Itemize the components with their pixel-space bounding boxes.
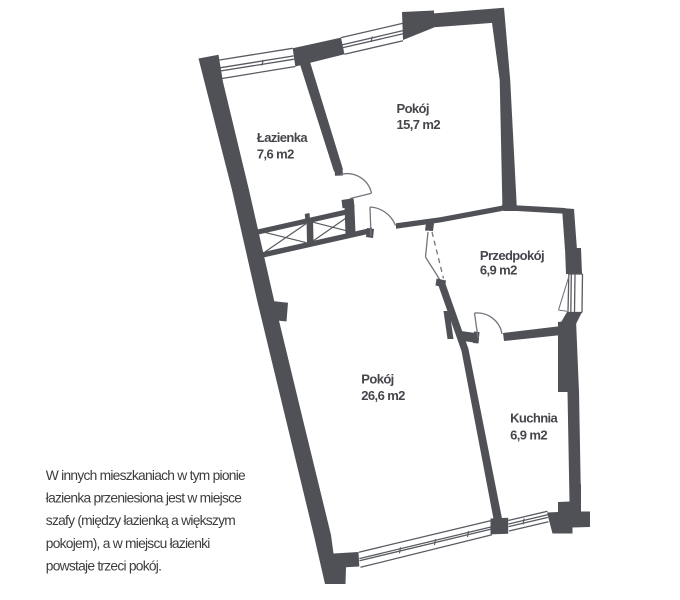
svg-text:Kuchnia: Kuchnia	[510, 410, 558, 425]
svg-text:powstaje trzeci pokój.: powstaje trzeci pokój.	[46, 558, 161, 573]
svg-text:Łazienka: Łazienka	[257, 130, 308, 145]
svg-text:Przedpokój: Przedpokój	[480, 248, 544, 263]
svg-text:pokojem), a w miejscu łazienki: pokojem), a w miejscu łazienki	[46, 536, 211, 551]
svg-text:6,9 m2: 6,9 m2	[480, 263, 517, 278]
svg-text:W innych mieszkaniach w tym pi: W innych mieszkaniach w tym pionie	[46, 468, 246, 483]
svg-text:26,6 m2: 26,6 m2	[361, 388, 405, 403]
svg-text:łazienka przeniesiona jest w m: łazienka przeniesiona jest w miejsce	[46, 491, 242, 506]
svg-text:15,7 m2: 15,7 m2	[397, 117, 441, 132]
svg-text:Pokój: Pokój	[361, 372, 393, 387]
svg-text:szafy (między łazienką a więks: szafy (między łazienką a większym	[46, 513, 235, 528]
svg-text:7,6 m2: 7,6 m2	[257, 147, 294, 162]
svg-text:6,9 m2: 6,9 m2	[510, 428, 547, 443]
svg-text:Pokój: Pokój	[397, 101, 429, 116]
